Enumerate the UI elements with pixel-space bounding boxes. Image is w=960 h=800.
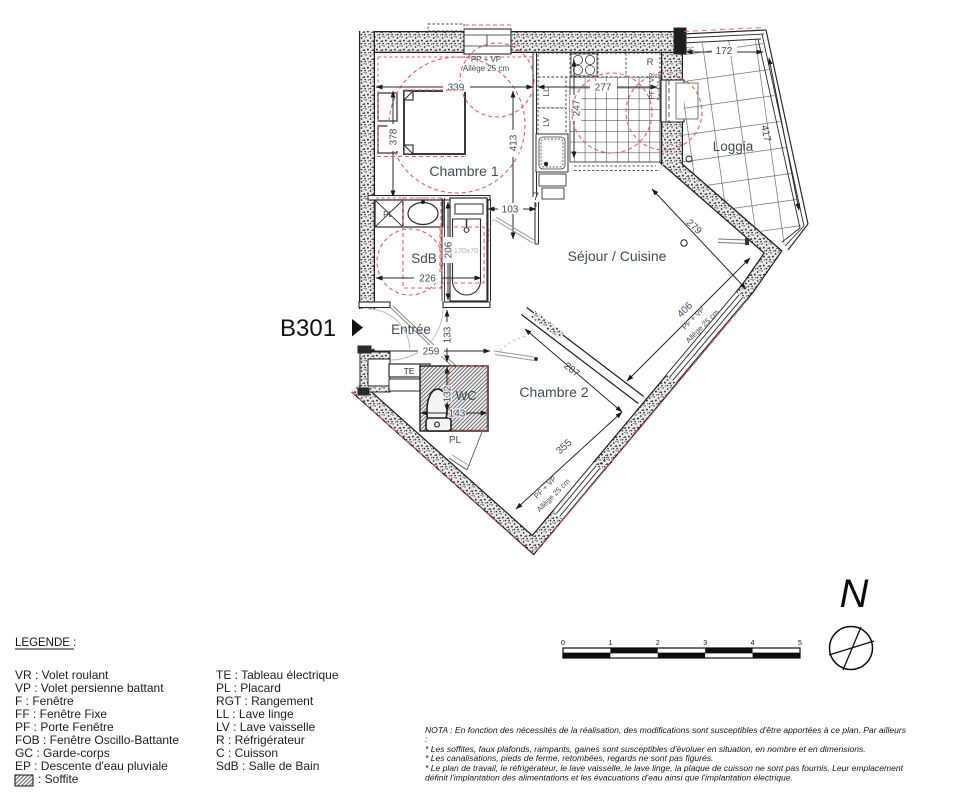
svg-text:TE: TE (404, 366, 415, 376)
svg-text:PF : Porte Fenêtre: PF : Porte Fenêtre (15, 720, 114, 734)
svg-text:LV : Lave vaisselle: LV : Lave vaisselle (216, 720, 315, 734)
svg-text:Entrée: Entrée (391, 322, 431, 337)
svg-text:RGT : Rangement: RGT : Rangement (216, 694, 314, 708)
svg-text:277: 277 (595, 83, 612, 94)
svg-text:103: 103 (502, 205, 519, 216)
svg-text:339: 339 (448, 83, 465, 94)
svg-text:PL: PL (383, 210, 393, 219)
svg-text:B301: B301 (280, 315, 336, 342)
svg-text:378: 378 (389, 128, 400, 145)
svg-text:Chambre 2: Chambre 2 (519, 384, 588, 400)
svg-text:SdB : Salle de Bain: SdB : Salle de Bain (216, 759, 319, 773)
svg-text:132: 132 (443, 385, 454, 402)
svg-text:Allège 25 cm: Allège 25 cm (463, 64, 510, 73)
svg-text:Chambre 1: Chambre 1 (429, 163, 498, 179)
svg-text:VP : Volet persienne battant: VP : Volet persienne battant (15, 681, 164, 695)
svg-text:EP : Descente d'eau pluviale: EP : Descente d'eau pluviale (15, 759, 168, 773)
svg-text:172: 172 (716, 46, 733, 57)
svg-text:2: 2 (656, 640, 660, 647)
svg-text:355: 355 (554, 437, 574, 457)
svg-text:définit l'implantation des ali: définit l'implantation des alimentations… (425, 773, 793, 783)
svg-text:* Le plan de travail, le réfri: * Le plan de travail, le réfrigérateur, … (425, 763, 904, 773)
svg-text::: : (425, 734, 428, 744)
svg-text:FOB : Fenêtre Oscillo-Battante: FOB : Fenêtre Oscillo-Battante (15, 733, 179, 747)
svg-text:206: 206 (444, 241, 455, 258)
svg-text:170x70: 170x70 (454, 246, 479, 255)
svg-text:5: 5 (798, 640, 802, 647)
svg-text:C : Cuisson: C : Cuisson (216, 746, 278, 760)
svg-text:GC : Garde-corps: GC : Garde-corps (15, 746, 110, 760)
svg-text:259: 259 (423, 347, 440, 358)
svg-text:133: 133 (443, 326, 454, 343)
svg-text:413: 413 (509, 134, 520, 151)
svg-text:PL : Placard: PL : Placard (216, 681, 281, 695)
svg-text:LL: LL (541, 87, 551, 97)
svg-text:Loggia: Loggia (713, 139, 754, 154)
svg-text:WC: WC (456, 389, 477, 403)
svg-text:LEGENDE :: LEGENDE : (15, 637, 76, 649)
svg-text:143: 143 (449, 409, 466, 420)
svg-text:Séjour / Cuisine: Séjour / Cuisine (568, 248, 667, 264)
svg-text:SdB: SdB (411, 251, 437, 266)
svg-text:LL : Lave linge: LL : Lave linge (216, 707, 294, 721)
svg-text:: Soffite: : Soffite (38, 772, 79, 786)
svg-text:7: 7 (533, 191, 539, 203)
svg-text:0: 0 (561, 640, 565, 647)
svg-text:1: 1 (608, 640, 612, 647)
svg-text:PL: PL (449, 435, 462, 446)
svg-text:FF : Fenêtre Fixe: FF : Fenêtre Fixe (15, 707, 107, 721)
svg-text:R: R (647, 57, 654, 68)
svg-text:LV: LV (541, 117, 551, 127)
svg-text:TE : Tableau électrique: TE : Tableau électrique (216, 668, 339, 682)
svg-text:NOTA : En fonction des nécessi: NOTA : En fonction des nécessités de la … (425, 725, 907, 735)
svg-text:R : Réfrigérateur: R : Réfrigérateur (216, 733, 305, 747)
svg-text:F : Fenêtre: F : Fenêtre (15, 694, 74, 708)
svg-text:PP + VP: PP + VP (471, 55, 501, 64)
svg-text:226: 226 (419, 274, 436, 285)
svg-text:4: 4 (751, 640, 755, 647)
svg-text:Seuil 15 cm: Seuil 15 cm (657, 71, 663, 100)
svg-text:GC: GC (686, 47, 694, 53)
svg-text:N: N (840, 572, 869, 616)
svg-text:* Les canalisations, pieds de: * Les canalisations, pieds de ferme, ret… (425, 753, 713, 763)
svg-text:279: 279 (684, 217, 704, 237)
svg-text:VR : Volet roulant: VR : Volet roulant (15, 668, 109, 682)
svg-text:3: 3 (703, 640, 707, 647)
